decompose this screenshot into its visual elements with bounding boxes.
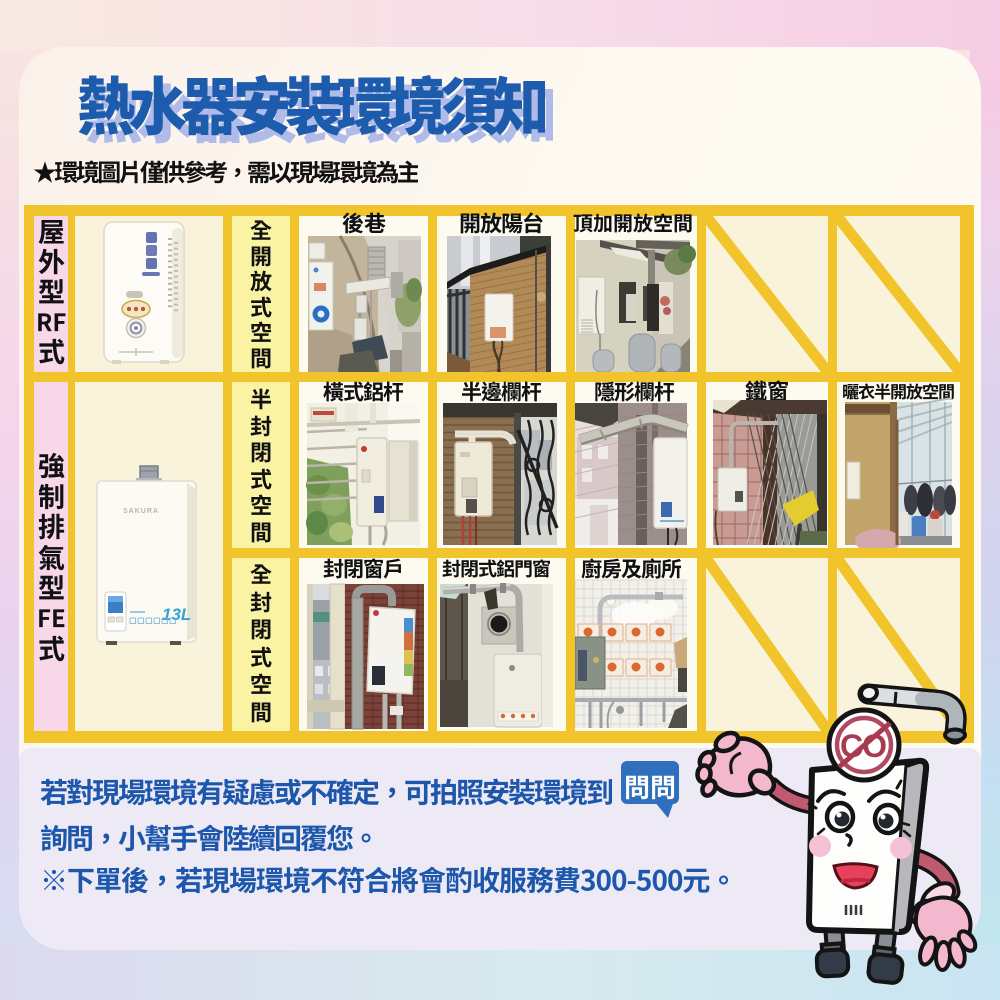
svg-text:SAKURA: SAKURA <box>123 508 159 515</box>
svg-text:13L: 13L <box>162 605 191 624</box>
